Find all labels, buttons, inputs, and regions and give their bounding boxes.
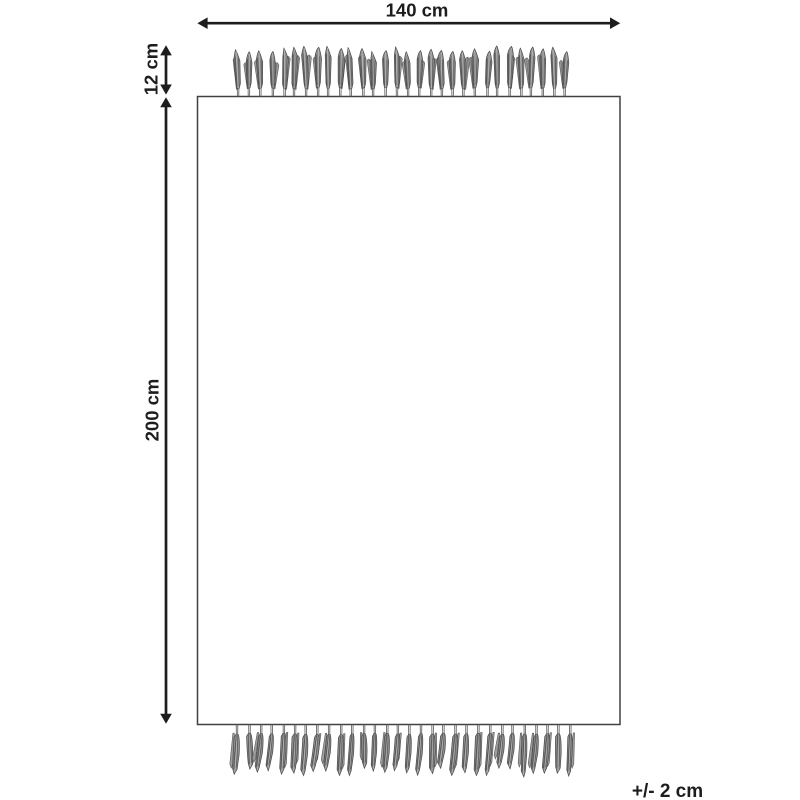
svg-text:140 cm: 140 cm bbox=[386, 0, 449, 21]
svg-text:12 cm: 12 cm bbox=[141, 43, 162, 95]
svg-text:200 cm: 200 cm bbox=[142, 379, 163, 442]
svg-text:+/- 2 cm: +/- 2 cm bbox=[632, 781, 703, 800]
